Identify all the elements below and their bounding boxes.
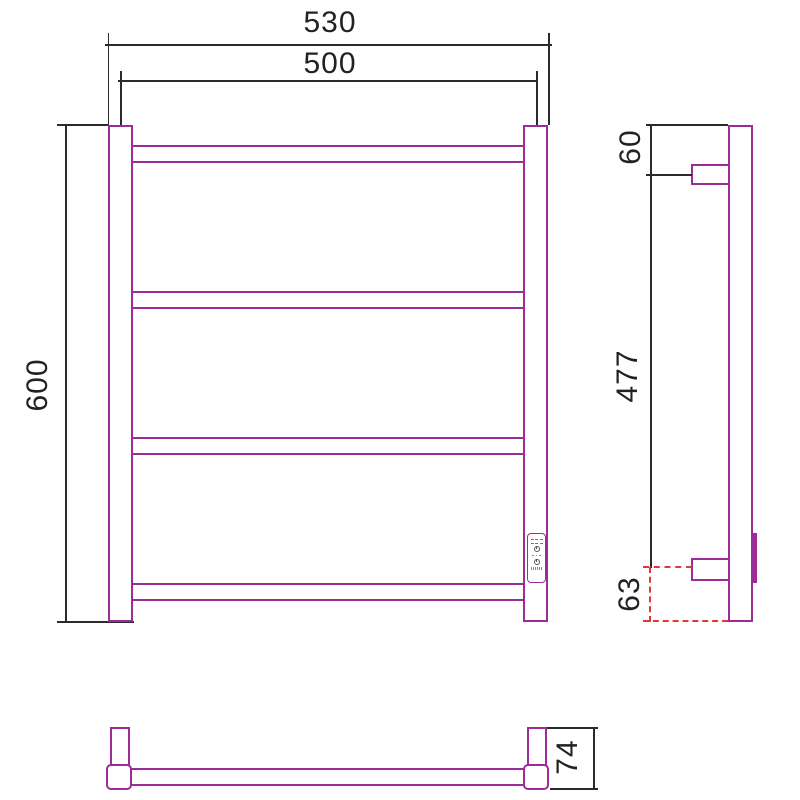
front-center-width-dim-line [118,80,538,82]
side-top-offset-label: 60 [614,117,644,177]
side-red-dash-vertical [649,567,651,622]
bottom-left-post-section [106,764,132,790]
front-bar-2 [131,291,525,309]
front-control-panel [527,533,546,583]
front-bar-4 [131,583,525,601]
front-height-label: 600 [21,340,55,430]
front-left-post [108,125,133,622]
side-span-label: 477 [611,331,645,421]
front-bar-3 [131,437,525,455]
bottom-depth-label: 74 [551,727,581,787]
bottom-right-bracket [527,727,547,767]
side-bottom-offset-label: 63 [613,564,643,624]
side-control-panel-profile [753,533,757,583]
side-lower-bracket [691,558,730,581]
bottom-right-post-section [523,764,549,790]
segment-display-icon [531,539,543,544]
front-overall-width-ext-right [548,33,550,125]
front-center-width-ext-left [120,71,122,125]
side-upper-bracket [691,164,730,185]
bottom-left-bracket [110,727,130,767]
side-upper-bracket-tick [646,174,692,176]
front-center-width-label: 500 [280,47,380,81]
front-height-dim-line [65,125,67,622]
front-height-tick-top [57,124,108,126]
power-icon [534,559,540,565]
side-red-dash-lower [643,620,728,622]
front-bar-1 [131,145,525,163]
bottom-depth-dim-line [593,727,595,789]
on-off-label-mark [531,567,542,570]
side-post [728,125,753,622]
clock-icon [534,546,540,552]
level-dots-icon [532,555,541,557]
side-dim-line [650,125,652,568]
front-overall-width-dim-line [105,44,552,46]
front-overall-width-ext-left [108,33,110,125]
front-overall-width-label: 530 [280,6,380,40]
front-center-width-ext-right [536,71,538,125]
bottom-bar-tube [130,768,526,786]
bottom-depth-tick-bottom [550,788,598,790]
drawing-canvas: 530 500 600 [0,0,800,800]
side-top-tick [646,124,728,126]
